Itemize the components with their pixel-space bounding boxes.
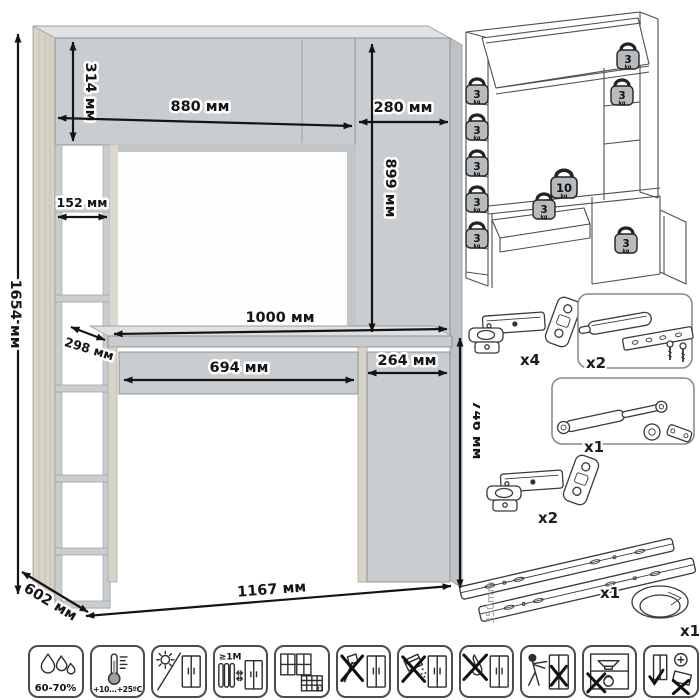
gas-lift-qty: x1 [584, 438, 604, 456]
niche-top-reveal [110, 145, 355, 152]
anvil-glyph [598, 660, 619, 668]
window-glyph [281, 654, 311, 675]
svg-text:kg: kg [474, 244, 481, 250]
sun-cabinet-icon [154, 649, 203, 695]
no-powder-icon [400, 649, 449, 695]
icon-no-abrasives [397, 645, 453, 698]
wardrobe-glyph [429, 655, 447, 686]
load-capacity-diagram: 3 kg 3 kg 3 kg 3 kg 3 kg [452, 2, 700, 290]
svg-text:+10...+25ºC: +10...+25ºC [93, 684, 142, 693]
weight-pedestal: 3 kg [615, 228, 637, 255]
svg-text:kg: kg [619, 101, 626, 107]
no-axe-icon [339, 649, 388, 695]
svg-text:kg: kg [474, 136, 481, 142]
cross-mark [342, 655, 363, 680]
dim-desktop-width-label: 1000 мм [245, 310, 314, 326]
hinge2-qty: x2 [538, 509, 558, 527]
icon-no-heavy-load [582, 645, 638, 698]
desktop-front-edge [108, 336, 452, 347]
top-cabinet-front [55, 38, 355, 145]
svg-text:≥1М: ≥1М [219, 652, 242, 662]
icon-do-not-drag [520, 645, 576, 698]
icon-keep-upright [643, 645, 699, 698]
niche [110, 145, 355, 346]
dim-top-height-label: 314 мм [82, 62, 98, 121]
line-art-cabinet [466, 12, 686, 288]
check-mark [650, 670, 663, 683]
person-glyph [529, 654, 547, 685]
wardrobe-glyph [490, 655, 508, 686]
icon-humidity: 60-70% [28, 645, 84, 698]
icon-no-open-flame [459, 645, 515, 698]
svg-text:kg: kg [541, 215, 548, 221]
hinge-qty: x4 [520, 351, 540, 369]
weight-right-shelf: 3 kg [611, 80, 633, 107]
window-calendar-icon: 21 [277, 649, 326, 695]
right-cabinet-front [355, 38, 450, 346]
cable-grommet-item [632, 586, 688, 618]
svg-text:kg: kg [474, 100, 481, 106]
icon-no-sunlight [151, 645, 207, 698]
wardrobe-glyph [245, 660, 262, 688]
weight-desktop: 10 kg [551, 170, 577, 199]
dim-door-width-label: 264 мм [377, 353, 436, 369]
dim-top-width-label: 880 мм [170, 99, 229, 115]
desk-divider-panel [358, 347, 367, 582]
dim-right-width-label: 280 мм [373, 100, 432, 116]
no-flame-icon [462, 649, 511, 695]
svg-text:60-70%: 60-70% [35, 682, 77, 693]
dim-drawer-width-label: 694 мм [209, 360, 268, 376]
icon-temperature: +10...+25ºC [90, 645, 146, 698]
niche-left-reveal [110, 145, 118, 346]
desk-left-panel [108, 347, 117, 582]
top-face [33, 26, 450, 38]
wardrobe-glyph [183, 655, 201, 686]
shelf-column-left-stile [55, 145, 62, 608]
care-icon-row: 60-70% +10...+25ºC ≥1М [28, 645, 699, 698]
keep-upright-icon [646, 649, 695, 695]
hinge-item-1: x4 [469, 295, 582, 369]
svg-text:kg: kg [474, 172, 481, 178]
radiator-glyph [219, 663, 235, 687]
icon-ventilation: 21 [274, 645, 330, 698]
slides-qty: x1 [600, 584, 620, 602]
svg-text:kg: kg [474, 208, 481, 214]
gas-lift-item: x1 [552, 378, 694, 456]
damper-item: x2 [578, 294, 693, 372]
wardrobe-glyph [367, 655, 385, 686]
niche-right-reveal [347, 145, 355, 346]
hinge-item-2: x2 [487, 453, 600, 527]
icon-heater-distance: ≥1М [213, 645, 269, 698]
weight-drawer: 3 kg [533, 194, 555, 221]
icon-no-sharp-impact [336, 645, 392, 698]
dim-right-height-label: 899 мм [382, 158, 398, 217]
dim-total-width-label: 1167 мм [237, 579, 307, 600]
hardware-section: x4 [448, 292, 700, 644]
thermometer-icon: +10...+25ºC [93, 649, 142, 695]
svg-text:kg: kg [625, 65, 632, 71]
no-overload-icon [585, 649, 634, 695]
grommet-qty: x1 [680, 622, 700, 640]
left-side-panel [33, 26, 55, 600]
radiator-distance-icon: ≥1М [216, 649, 265, 695]
humidity-icon: 60-70% [31, 649, 80, 695]
no-drag-icon [523, 649, 572, 695]
cross-mark [674, 680, 689, 693]
svg-text:21: 21 [317, 686, 325, 692]
dim-shelf-width-label: 152 мм [57, 195, 108, 210]
pedestal-door [367, 352, 450, 582]
svg-text:kg: kg [561, 194, 568, 200]
cross-mark [464, 655, 487, 680]
slide-length-label: 350mm [484, 582, 497, 624]
svg-text:kg: kg [623, 249, 630, 255]
dim-total-height-label: 1654 мм [7, 279, 23, 348]
damper-qty: x2 [586, 354, 606, 372]
shelf-column [55, 145, 110, 608]
main-dimension-diagram: 1654 мм 314 мм 880 мм 280 мм 899 мм 152 … [0, 0, 480, 645]
kettlebell-glyph [604, 675, 613, 685]
